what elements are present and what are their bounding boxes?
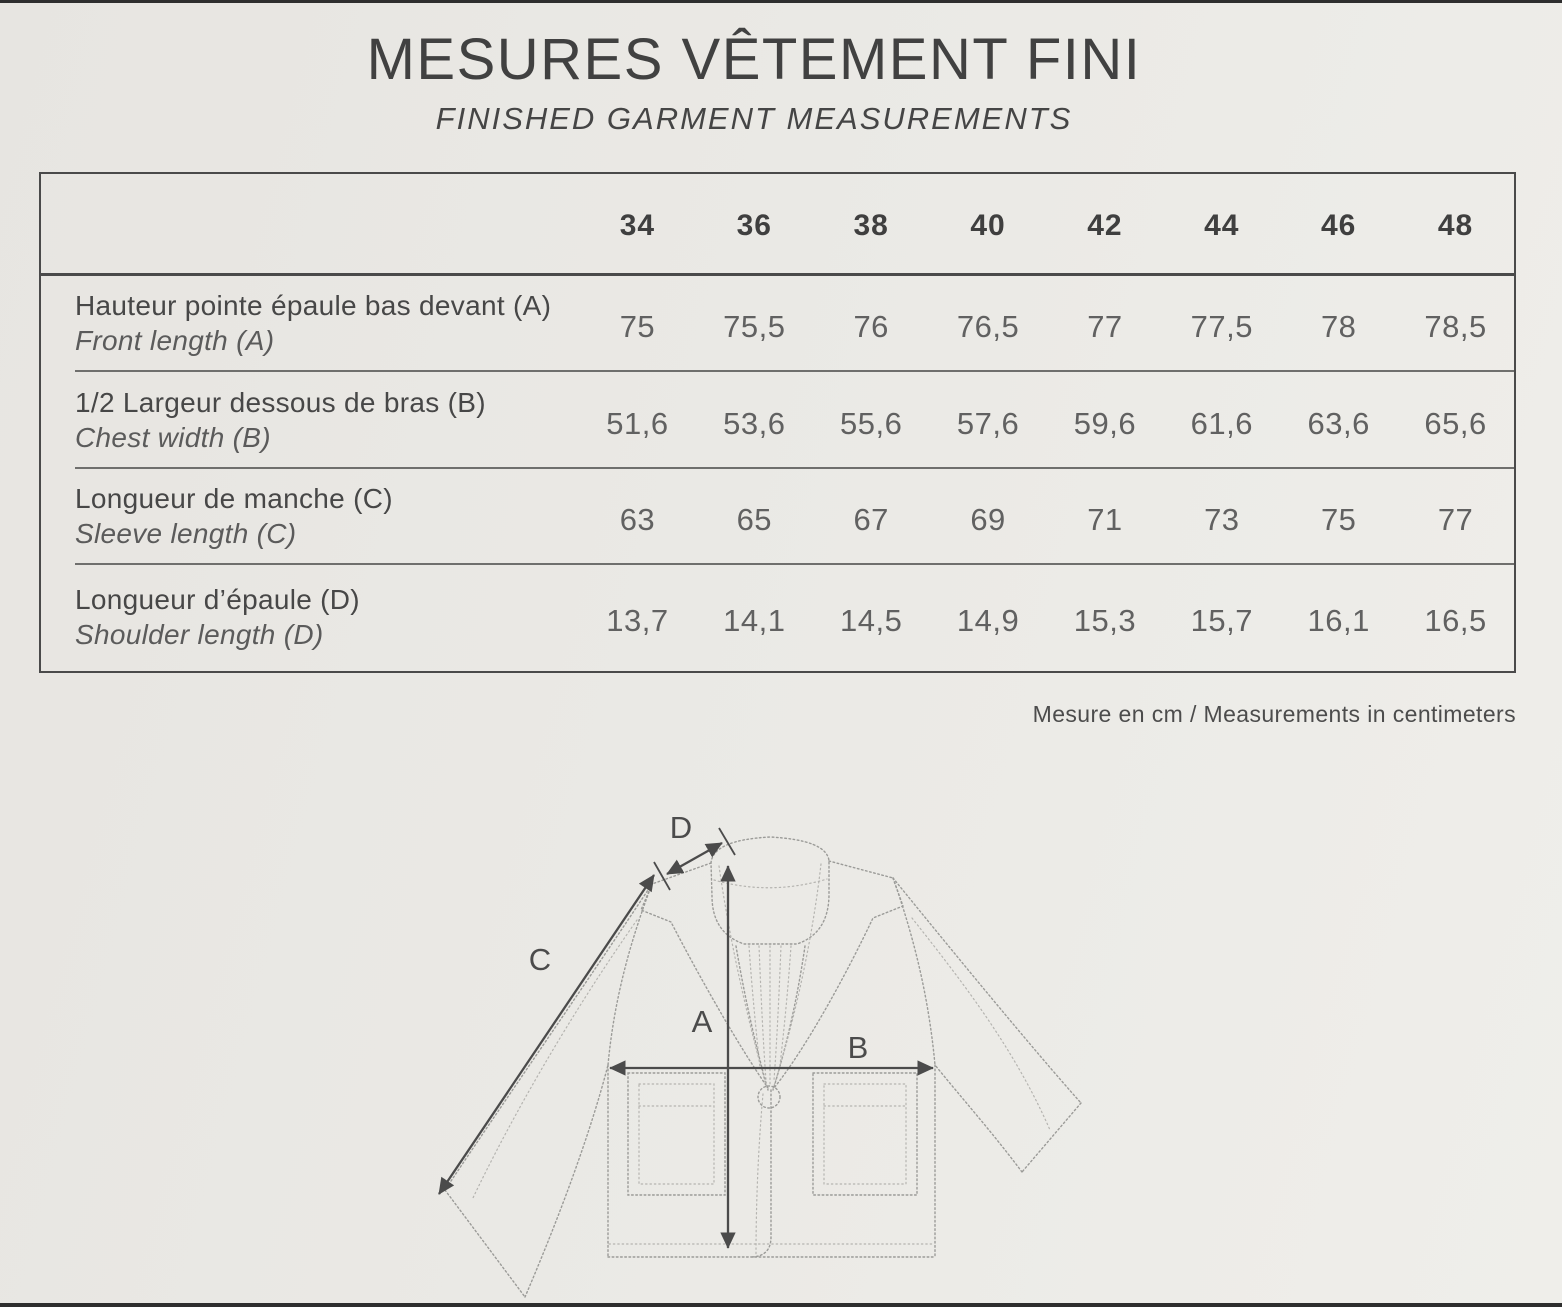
measurement-value: 69 — [930, 494, 1047, 538]
measurement-value: 16,1 — [1280, 595, 1397, 639]
table-row-chest-width: 1/2 Largeur dessous de bras (B) Chest wi… — [41, 372, 1514, 467]
measurement-value: 77,5 — [1163, 301, 1280, 345]
size-column-header: 46 — [1280, 205, 1397, 243]
left-lapel — [641, 884, 768, 1088]
measurement-value: 65 — [696, 494, 813, 538]
measurement-value: 77 — [1047, 301, 1164, 345]
measurement-value: 76,5 — [930, 301, 1047, 345]
row-label-en: Front length (A) — [75, 323, 579, 358]
left-sleeve-outer — [445, 884, 652, 1190]
row-label: Hauteur pointe épaule bas devant (A) Fro… — [41, 288, 579, 358]
right-shoulder-seam — [829, 861, 893, 878]
row-label-fr: Hauteur pointe épaule bas devant (A) — [75, 288, 579, 323]
measurement-value: 13,7 — [579, 595, 696, 639]
measurement-value: 71 — [1047, 494, 1164, 538]
measurement-value: 75 — [579, 301, 696, 345]
row-label-en: Sleeve length (C) — [75, 516, 579, 551]
button — [758, 1086, 780, 1108]
row-label-fr: Longueur de manche (C) — [75, 481, 579, 516]
measurement-value: 59,6 — [1047, 398, 1164, 442]
right-pocket — [813, 1073, 917, 1195]
measurement-value: 63 — [579, 494, 696, 538]
d-tick-upper — [719, 828, 735, 855]
collar-crease — [714, 879, 827, 888]
measurement-value: 65,6 — [1397, 398, 1514, 442]
units-note: Mesure en cm / Measurements in centimete… — [1033, 701, 1516, 728]
size-column-header: 34 — [579, 205, 696, 243]
d-tick-lower — [654, 862, 670, 890]
scanned-pattern-sheet: MESURES VÊTEMENT FINI FINISHED GARMENT M… — [0, 0, 1562, 1307]
measurement-value: 14,9 — [930, 595, 1047, 639]
left-sleeve-cuff — [445, 1190, 525, 1297]
measurement-value: 55,6 — [813, 398, 930, 442]
row-label: Longueur de manche (C) Sleeve length (C) — [41, 481, 579, 551]
right-sleeve-underseam — [935, 1065, 1022, 1172]
measurement-value: 76 — [813, 301, 930, 345]
measurement-value: 75 — [1280, 494, 1397, 538]
label-b: B — [848, 1030, 869, 1065]
measurement-value: 15,7 — [1163, 595, 1280, 639]
right-lapel — [774, 878, 903, 1088]
measurement-value: 16,5 — [1397, 595, 1514, 639]
table-row-front-length: Hauteur pointe épaule bas devant (A) Fro… — [41, 276, 1514, 370]
size-column-header: 44 — [1163, 205, 1280, 243]
measurement-value: 14,1 — [696, 595, 813, 639]
measurement-value: 15,3 — [1047, 595, 1164, 639]
table-row-sleeve-length: Longueur de manche (C) Sleeve length (C)… — [41, 469, 1514, 563]
right-sleeve-fold — [912, 918, 1050, 1130]
row-label-en: Chest width (B) — [75, 420, 579, 455]
row-label: 1/2 Largeur dessous de bras (B) Chest wi… — [41, 385, 579, 455]
measurement-value: 75,5 — [696, 301, 813, 345]
label-c: C — [529, 942, 551, 977]
row-label: Longueur d’épaule (D) Shoulder length (D… — [41, 582, 579, 652]
row-label-fr: 1/2 Largeur dessous de bras (B) — [75, 385, 579, 420]
measurement-value: 78 — [1280, 301, 1397, 345]
scan-edge-bottom — [0, 1303, 1562, 1307]
page-title: MESURES VÊTEMENT FINI — [0, 30, 1508, 91]
table-row-shoulder-length: Longueur d’épaule (D) Shoulder length (D… — [41, 565, 1514, 669]
label-d: D — [670, 810, 692, 845]
measurement-value: 78,5 — [1397, 301, 1514, 345]
row-label-en: Shoulder length (D) — [75, 617, 579, 652]
left-sleeve-underseam — [525, 1065, 608, 1297]
garment-diagram: A B C D — [400, 800, 1140, 1300]
measurements-table: 34 36 38 40 42 44 46 48 Hauteur pointe é… — [39, 172, 1516, 673]
label-a: A — [692, 1004, 713, 1039]
right-sleeve-cuff — [1022, 1103, 1081, 1172]
left-pocket — [628, 1073, 725, 1195]
arrow-c — [439, 875, 654, 1194]
table-header-row: 34 36 38 40 42 44 46 48 — [41, 174, 1514, 273]
size-column-header: 38 — [813, 205, 930, 243]
right-sleeve-outer — [893, 878, 1081, 1103]
size-column-header: 48 — [1397, 205, 1514, 243]
size-column-header: 42 — [1047, 205, 1164, 243]
measurement-value: 61,6 — [1163, 398, 1280, 442]
left-sleeve-fold — [472, 920, 637, 1200]
measurement-value: 57,6 — [930, 398, 1047, 442]
measurement-value: 77 — [1397, 494, 1514, 538]
measurement-value: 63,6 — [1280, 398, 1397, 442]
size-column-header: 36 — [696, 205, 813, 243]
measurement-value: 67 — [813, 494, 930, 538]
row-label-fr: Longueur d’épaule (D) — [75, 582, 579, 617]
measurement-value: 53,6 — [696, 398, 813, 442]
page-subtitle: FINISHED GARMENT MEASUREMENTS — [0, 101, 1508, 137]
measurement-value: 14,5 — [813, 595, 930, 639]
right-armhole — [893, 878, 935, 1065]
measurement-value: 51,6 — [579, 398, 696, 442]
size-column-header: 40 — [930, 205, 1047, 243]
underlap-edge — [756, 1094, 763, 1256]
measurement-value: 73 — [1163, 494, 1280, 538]
header: MESURES VÊTEMENT FINI FINISHED GARMENT M… — [0, 0, 1508, 137]
center-front-edge — [752, 1090, 771, 1257]
measurement-arrows: A B C D — [439, 810, 933, 1248]
